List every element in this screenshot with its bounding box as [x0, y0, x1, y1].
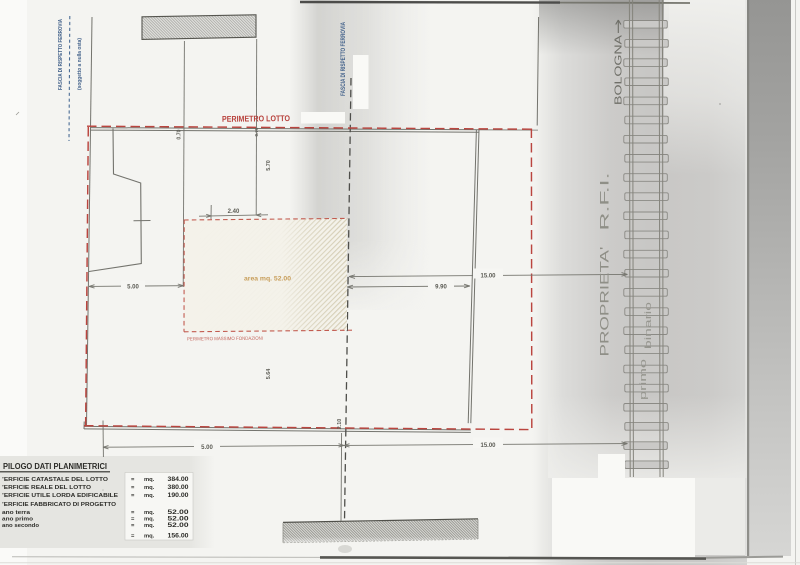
svg-text:PERIMETRO LOTTO: PERIMETRO LOTTO: [222, 113, 291, 124]
svg-text:2.10: 2.10: [337, 419, 343, 430]
svg-text:384.00: 384.00: [168, 476, 190, 483]
svg-text:FASCIA DI RISPETTO FERROVIA: FASCIA DI RISPETTO FERROVIA: [341, 21, 347, 96]
svg-text:mq.: mq.: [144, 523, 155, 529]
svg-text:mq.: mq.: [144, 485, 155, 491]
svg-text:R.F.I.: R.F.I.: [598, 173, 612, 231]
svg-text:(soggetto a nulla osta): (soggetto a nulla osta): [77, 38, 83, 90]
svg-text:0.70: 0.70: [177, 129, 183, 139]
svg-text:mq.: mq.: [144, 493, 155, 499]
svg-text:2.40: 2.40: [228, 209, 240, 215]
svg-text:primo: primo: [638, 359, 648, 400]
svg-text:ano primo: ano primo: [2, 517, 33, 523]
svg-text:156.00: 156.00: [168, 533, 190, 540]
svg-text:9.90: 9.90: [435, 284, 447, 290]
svg-text:190.00: 190.00: [168, 492, 190, 499]
svg-text:380.00: 380.00: [168, 484, 190, 491]
svg-text:mq.: mq.: [144, 517, 155, 523]
svg-text:52.00: 52.00: [168, 522, 190, 529]
svg-text:mq.: mq.: [144, 534, 155, 540]
svg-text:5.64: 5.64: [266, 369, 272, 380]
svg-text:’ERFICIE FABBRICATO DI PROGETT: ’ERFICIE FABBRICATO DI PROGETTO: [2, 502, 117, 508]
svg-text:PROPRIETA': PROPRIETA': [598, 247, 612, 357]
svg-text:mq.: mq.: [144, 477, 155, 483]
svg-text:’ERFICIE CATASTALE DEL LOTTO: ’ERFICIE CATASTALE DEL LOTTO: [2, 477, 109, 483]
svg-text:5.00: 5.00: [127, 285, 139, 291]
svg-text:5.00: 5.00: [201, 445, 213, 451]
svg-text:PILOGO DATI PLANIMETRICI: PILOGO DATI PLANIMETRICI: [3, 462, 107, 471]
svg-text:PERIMETRO MASSIMO FONDAZIONI: PERIMETRO MASSIMO FONDAZIONI: [187, 336, 263, 343]
svg-text:0.75: 0.75: [254, 127, 259, 136]
svg-text:5.70: 5.70: [266, 160, 272, 171]
svg-text:15.00: 15.00: [480, 443, 496, 449]
svg-text:’ERFICIE UTILE LORDA EDIFICABI: ’ERFICIE UTILE LORDA EDIFICABILE: [2, 493, 118, 499]
svg-text:FASCIA DI RISPETTO FERROVIA: FASCIA DI RISPETTO FERROVIA: [58, 18, 64, 90]
svg-text:binario: binario: [643, 302, 653, 349]
svg-text:BOLOGNA: BOLOGNA: [614, 35, 625, 105]
svg-text:area mq. 52.00: area mq. 52.00: [244, 276, 291, 283]
svg-text:ano secondo: ano secondo: [2, 523, 39, 529]
svg-text:mq.: mq.: [144, 510, 155, 516]
svg-text:ano terra: ano terra: [2, 510, 31, 516]
svg-text:’ERFICIE REALE DEL LOTTO: ’ERFICIE REALE DEL LOTTO: [2, 485, 92, 491]
svg-text:15.00: 15.00: [480, 273, 496, 279]
